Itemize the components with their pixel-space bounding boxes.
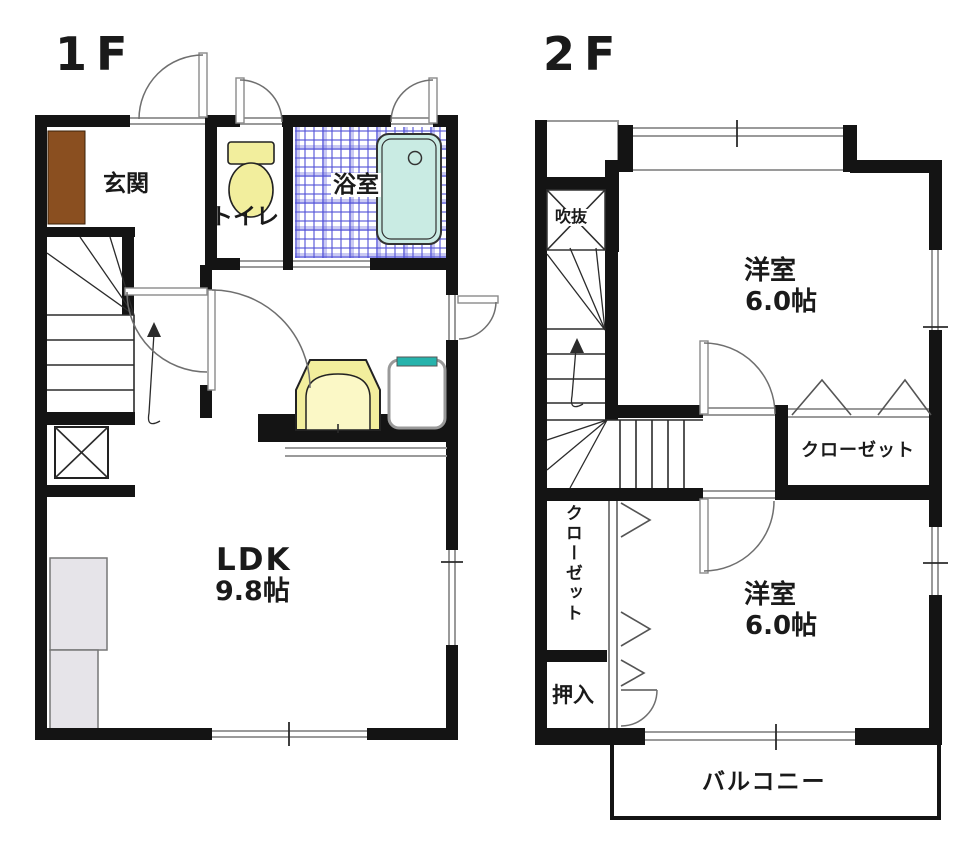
floor2-label: 2F — [543, 30, 624, 78]
room-label-ldk-size: 9.8帖 — [215, 578, 290, 606]
washing-machine — [389, 357, 445, 428]
room-label-bedroom1-size: 6.0帖 — [745, 289, 817, 316]
east-exterior-door — [458, 296, 498, 339]
room-label-balcony: バルコニー — [702, 770, 827, 794]
floor2-walls — [535, 120, 942, 745]
entrance-door — [139, 53, 207, 119]
under-stair-storage-box — [55, 427, 108, 478]
bedroom2-east-window — [923, 527, 948, 595]
toilet-door — [236, 78, 282, 123]
stair-up-arrow-1f — [147, 322, 161, 424]
room-label-oshiire: 押入 — [552, 684, 594, 706]
room-label-ldk: LDK — [216, 544, 292, 577]
bath-door — [391, 78, 437, 123]
closet-label-side: クローゼット — [562, 504, 580, 649]
ldk-south-window — [212, 722, 367, 746]
closet-side-divider — [609, 501, 650, 728]
staircase-2f — [547, 248, 703, 488]
washroom-counter-line — [285, 448, 447, 456]
floor1-label: 1F — [55, 30, 136, 78]
genkan-step — [48, 131, 85, 224]
washroom-door — [208, 290, 310, 390]
staircase-1f — [47, 237, 134, 412]
bathtub — [377, 134, 441, 244]
room-label-genkan: 玄関 — [103, 172, 149, 196]
bedroom1-north-window — [633, 120, 843, 170]
floorplan-canvas: 1F 2F 玄関 トイレ 浴室 LDK 9.8帖 吹抜 洋室 6.0帖 クローゼ… — [0, 0, 960, 846]
room-label-toilet: トイレ — [210, 205, 279, 229]
hall-door — [125, 288, 207, 372]
room-label-bedroom2: 洋室 — [744, 582, 796, 609]
stair-up-arrow-2f — [570, 338, 584, 407]
bedroom2-door — [700, 499, 774, 573]
oshiire-door — [621, 660, 657, 726]
balcony-sliding-door — [645, 724, 855, 750]
floorplan-drawing — [0, 0, 960, 846]
closet-label-top: クローゼット — [801, 442, 915, 461]
bedroom1-door — [700, 341, 775, 414]
closet-top-front — [788, 380, 931, 417]
room-label-bedroom1: 洋室 — [744, 258, 796, 285]
bedroom1-east-window — [923, 250, 948, 330]
ldk-east-window — [441, 550, 463, 645]
room-label-bedroom2-size: 6.0帖 — [745, 613, 817, 640]
floor2-thresholds — [703, 408, 775, 498]
room-label-void: 吹抜 — [553, 209, 589, 226]
kitchen-counter — [50, 558, 107, 732]
floor1-plan — [35, 53, 498, 746]
floor2-plan — [535, 120, 948, 818]
room-label-bath: 浴室 — [331, 173, 381, 197]
